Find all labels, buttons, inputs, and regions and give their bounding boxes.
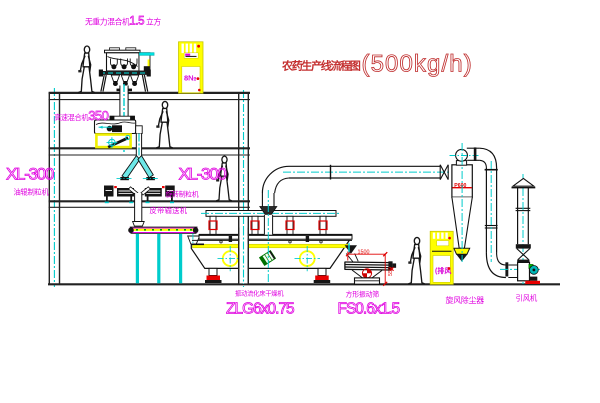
svg-text:皮带输送机: 皮带输送机 <box>150 206 188 215</box>
svg-text:旋转制粒机: 旋转制粒机 <box>166 190 199 199</box>
svg-text:旋风除尘器: 旋风除尘器 <box>446 295 485 305</box>
svg-text:油辊制粒机: 油辊制粒机 <box>14 188 50 197</box>
svg-text:无重力混合机1.5 立方: 无重力混合机1.5 立方 <box>85 16 161 28</box>
svg-text:XL-300: XL-300 <box>6 165 54 184</box>
svg-text:(500kg/h): (500kg/h) <box>362 51 473 78</box>
svg-text:ZLG6x0.75: ZLG6x0.75 <box>226 300 294 317</box>
svg-text:农药生产线流程图: 农药生产线流程图 <box>281 59 361 73</box>
svg-text:1500: 1500 <box>358 249 370 255</box>
svg-text:FS0.6x1.5: FS0.6x1.5 <box>338 300 400 317</box>
svg-text:8№: 8№ <box>184 74 197 83</box>
svg-text:XL-300: XL-300 <box>179 165 227 184</box>
svg-text:引风机: 引风机 <box>516 294 538 303</box>
svg-text:P600: P600 <box>454 183 466 189</box>
svg-text:方形振动筛: 方形振动筛 <box>346 289 380 298</box>
svg-text:550: 550 <box>388 267 394 276</box>
svg-text:振动流化床干燥机: 振动流化床干燥机 <box>235 289 284 298</box>
